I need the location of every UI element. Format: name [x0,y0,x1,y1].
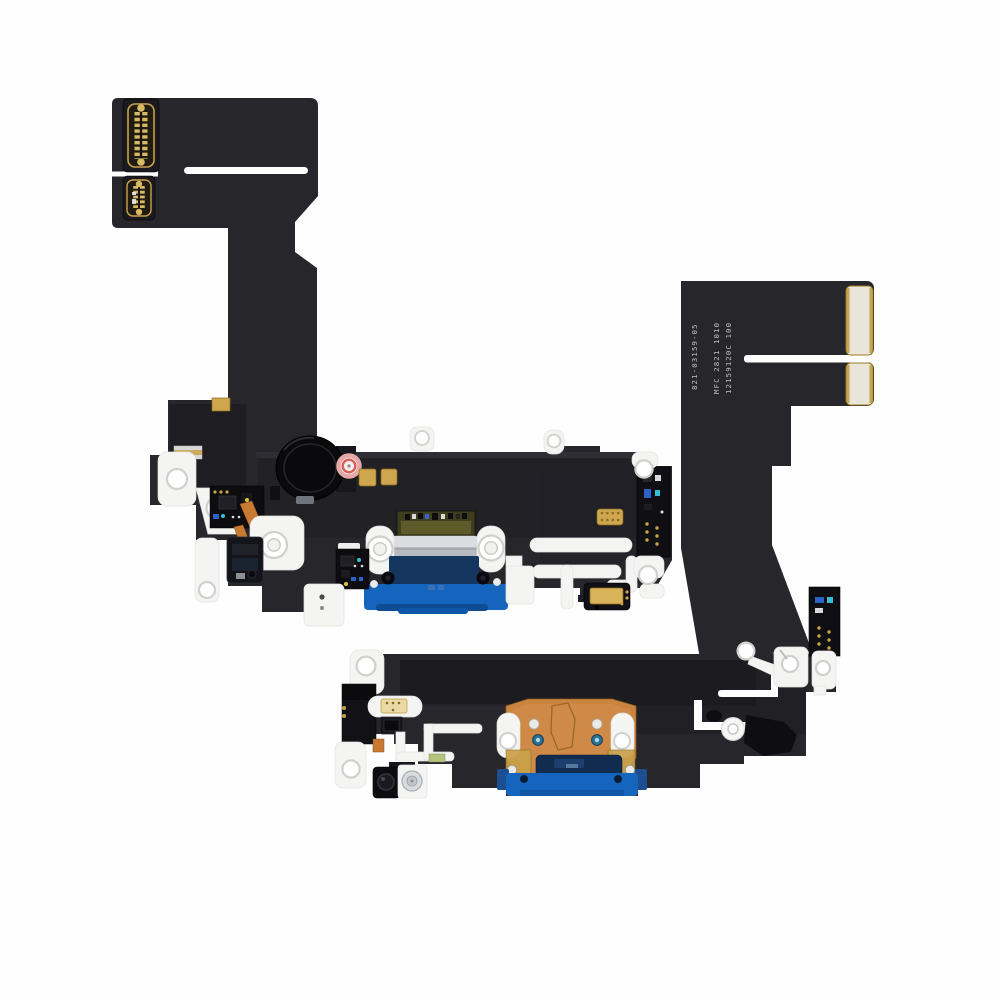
seal-dot [347,464,350,467]
component-cyan [357,558,361,562]
product-photo-canvas: 821-03159-05 MFC 2821 1010 12159120C 100 [0,0,1000,1000]
component-dot [361,565,364,568]
screw-hole [816,661,830,675]
metal-fleck [236,573,245,579]
green-pad [429,754,445,762]
screw-hole [357,657,376,676]
grommet-center [374,543,387,556]
bottom-plastic-right [506,566,534,604]
smd [456,514,460,519]
trace-vertical [561,565,573,609]
component-blue [351,577,356,581]
dark-connector-cluster [227,537,263,583]
component-dot [661,511,664,514]
ribbon-step [681,406,791,466]
motor-lead [270,486,280,500]
ribbon-slit [744,355,876,363]
motor-disc [276,436,344,500]
housing-marking [428,585,435,590]
flex-slit [184,167,308,174]
screw-hole [782,656,798,672]
ic-chip [341,570,350,578]
rivet-white [592,719,602,729]
sealing-ring [339,456,360,477]
gold-contact-pad [381,699,407,713]
ribbon-band-2 [681,362,874,406]
component-blue [644,489,651,498]
port-screw [614,775,622,783]
component-cyan [827,597,833,603]
pcb-olive-light [401,521,471,534]
port-bottom-strip [520,790,624,796]
contact-bar [597,509,623,525]
bracket-tail [640,584,664,598]
grommet-center [268,539,280,551]
bracket-tab [814,686,826,695]
board-connector-1 [123,99,159,172]
connector-back-pad [846,363,873,405]
cluster-detail [232,558,258,571]
right-pcb-strip [637,467,670,557]
cluster-detail [232,544,258,555]
screw-hole [548,435,561,448]
component-dot [238,516,241,519]
gold-test-dots [213,490,228,493]
solder-pad [381,469,397,485]
lens-glint [381,777,385,781]
shield-top-face [391,536,478,547]
flex-label-text: 821-03159-05 MFC 2821 1010 12159120C 100 [690,322,733,394]
connector-back-pad [846,286,873,355]
motor-contact [296,496,314,504]
component-yellow [344,582,348,586]
ring-bracket [738,643,755,660]
lot-code-text: 12159120C 100 [724,322,733,394]
port-glint [566,764,578,768]
port-screw [520,775,528,783]
smd [448,513,453,519]
grommet-center [728,724,738,734]
mic-port-hole [595,605,599,609]
screw-recess-center [480,575,485,580]
mic-gold-pad [590,588,623,604]
rivet-white [493,578,501,586]
boss-hole [500,733,516,749]
smd [412,514,416,519]
screw-hole [167,469,187,489]
ic-chip [219,496,236,509]
bracket-dot [320,606,324,610]
upper-assembly [112,98,672,626]
bracket-dot [319,594,324,599]
right-grommet [477,526,505,572]
housing-tab [398,608,468,614]
upper-main-board [150,398,672,626]
connector-marking [132,199,136,204]
component-dot [354,565,357,568]
pad-gold-edge [847,365,850,403]
component-cyan [655,490,660,496]
screw-hole [199,582,215,598]
screw-recess-center [385,575,390,580]
connector-end-cap [136,209,142,215]
lens [378,774,394,790]
screw-hole [342,760,359,777]
connector-end-cap [136,181,142,187]
grommet-center [485,542,498,555]
gold-contact-bar [597,509,623,525]
rivet-teal-center [536,738,540,742]
pad-gold-edge [870,288,873,353]
connector-back-pads [846,286,873,405]
pad-gold-edge [870,365,873,403]
smd [441,514,445,519]
board-connector-2 [123,176,155,220]
component-blue [213,514,219,519]
smd [418,513,423,519]
connector-marking [132,192,136,195]
housing-marking [438,585,444,590]
gold-dot [342,714,346,718]
component-blue [815,597,824,603]
microphone [578,583,630,610]
rivet-teal-center [595,738,599,742]
flex-cable-illustration: 821-03159-05 MFC 2821 1010 12159120C 100 [0,0,1000,1000]
pad-gold-edge [847,288,850,353]
mfc-code-text: MFC 2821 1010 [712,322,721,394]
component-dot [232,516,235,519]
ribbon-neck [681,462,812,659]
screw-hole [635,460,652,477]
shield-box-top [342,684,376,700]
smd [462,513,467,519]
smd [405,514,410,520]
trace-bar [533,565,621,578]
cluster-hole [248,570,256,578]
slot [718,690,778,697]
bottom-bracket-left [304,584,344,626]
screw-hole [639,566,657,584]
metal-disc-dot [411,780,414,783]
logic-board-ribbon: 821-03159-05 MFC 2821 1010 12159120C 100 [681,281,876,659]
smd [815,608,823,613]
flash-module [373,762,427,798]
port-pcb [397,511,475,538]
bracket-lower-right [634,556,664,598]
slot [694,700,702,730]
antenna-blob [706,710,722,722]
ribbon-band-1 [681,281,874,356]
component-blue [359,577,363,581]
pcb-substrate [336,549,369,589]
connector-end-cap [137,104,145,112]
component-yellow [245,498,249,502]
copper-elbow [373,739,384,752]
component-cyan [221,514,225,518]
trace-bar [530,538,632,552]
smd [655,475,661,481]
antenna-pcb [809,587,840,656]
driver-pcb [336,543,369,589]
pcb-substrate [637,467,670,557]
connector-end-cap [137,158,145,166]
boss-hole [614,733,630,749]
rivet-white [370,580,378,588]
gold-antenna-pad [212,398,230,411]
smd [425,514,429,519]
gold-dot [342,706,346,710]
smd [432,513,438,520]
smd [644,504,652,510]
screw-hole [415,431,429,445]
ic-chip [341,556,354,566]
solder-pad [359,469,376,486]
part-number-text: 821-03159-05 [690,323,699,390]
rivet-white [529,719,539,729]
small-connector-cavity [384,720,399,731]
smd-component-row [405,513,467,520]
